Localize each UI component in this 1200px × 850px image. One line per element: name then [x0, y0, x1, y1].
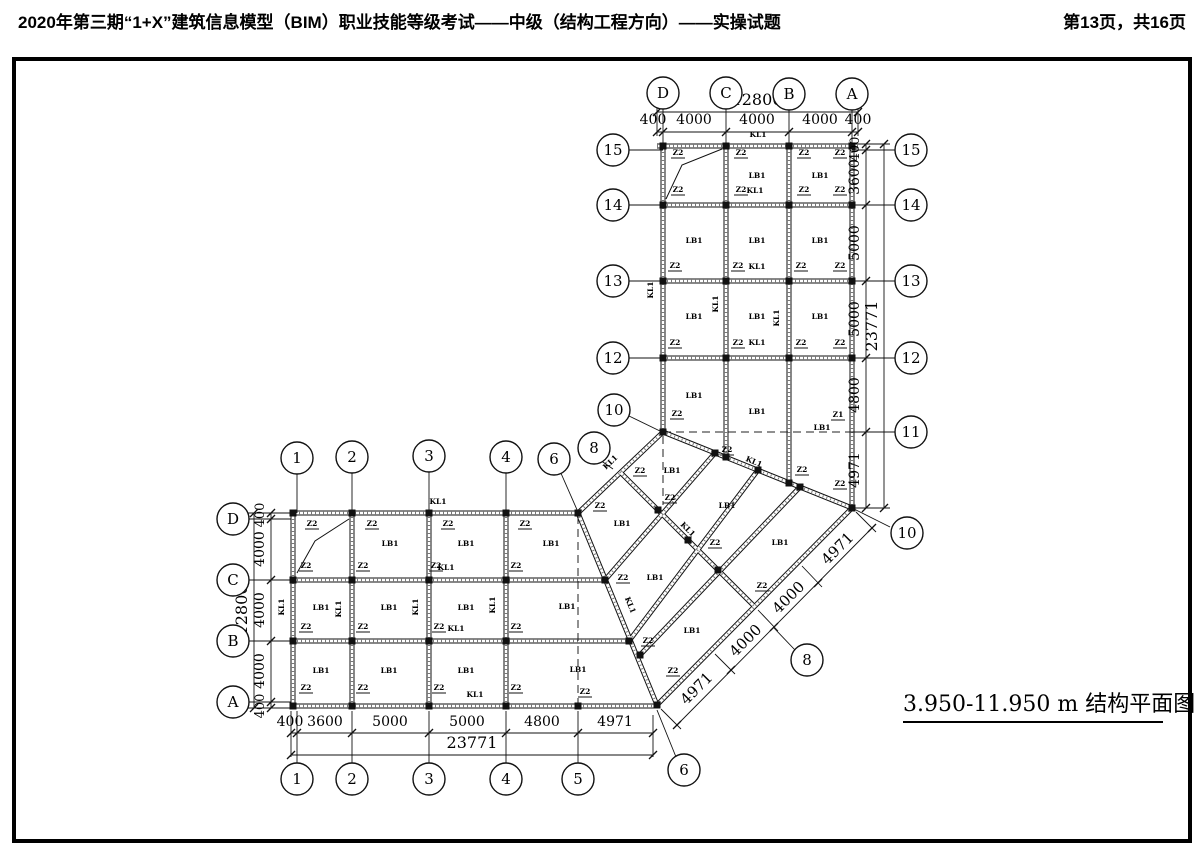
svg-text:LB1: LB1: [686, 391, 703, 400]
svg-text:5000: 5000: [449, 714, 485, 730]
svg-text:LB1: LB1: [313, 603, 330, 612]
svg-text:Z2: Z2: [797, 465, 808, 474]
svg-text:KL1: KL1: [488, 596, 497, 613]
svg-text:LB1: LB1: [772, 538, 789, 547]
svg-text:23771: 23771: [862, 301, 881, 352]
svg-text:14: 14: [603, 196, 622, 214]
svg-text:Z2: Z2: [672, 409, 683, 418]
svg-text:4: 4: [501, 770, 511, 788]
svg-text:3: 3: [424, 447, 434, 465]
svg-text:Z2: Z2: [511, 622, 522, 631]
svg-text:Z2: Z2: [796, 261, 807, 270]
svg-text:4971: 4971: [847, 452, 863, 488]
svg-text:Z2: Z2: [722, 445, 733, 454]
svg-text:C: C: [227, 571, 238, 589]
svg-text:10: 10: [604, 401, 623, 419]
svg-text:Z2: Z2: [618, 573, 629, 582]
svg-text:B: B: [227, 632, 238, 650]
svg-text:KL1: KL1: [746, 186, 763, 195]
svg-text:Z2: Z2: [835, 185, 846, 194]
svg-text:2: 2: [347, 448, 357, 466]
svg-text:Z2: Z2: [520, 519, 531, 528]
svg-text:4971: 4971: [597, 714, 633, 730]
svg-text:Z2: Z2: [799, 148, 810, 157]
svg-text:KL1: KL1: [466, 690, 483, 699]
svg-text:11: 11: [901, 423, 920, 441]
svg-text:LB1: LB1: [686, 312, 703, 321]
svg-text:LB1: LB1: [814, 423, 831, 432]
svg-text:Z2: Z2: [757, 581, 768, 590]
svg-text:LB1: LB1: [684, 626, 701, 635]
svg-text:Z2: Z2: [670, 338, 681, 347]
svg-text:8: 8: [802, 651, 812, 669]
svg-text:Z2: Z2: [595, 501, 606, 510]
svg-text:400: 400: [277, 714, 304, 730]
svg-text:Z2: Z2: [799, 185, 810, 194]
svg-text:1: 1: [292, 449, 302, 467]
svg-text:Z2: Z2: [733, 338, 744, 347]
svg-text:Z2: Z2: [673, 148, 684, 157]
svg-text:3600: 3600: [847, 159, 863, 195]
svg-text:Z2: Z2: [434, 683, 445, 692]
svg-text:D: D: [227, 510, 239, 528]
svg-text:KL1: KL1: [749, 130, 766, 139]
svg-text:Z2: Z2: [307, 519, 318, 528]
svg-text:LB1: LB1: [559, 602, 576, 611]
svg-text:KL1: KL1: [429, 497, 446, 506]
svg-text:LB1: LB1: [313, 666, 330, 675]
svg-text:4: 4: [501, 448, 511, 466]
svg-text:KL1: KL1: [334, 600, 343, 617]
svg-text:Z2: Z2: [301, 622, 312, 631]
svg-text:KL1: KL1: [711, 295, 720, 312]
svg-text:2: 2: [347, 770, 357, 788]
svg-text:8: 8: [589, 439, 599, 457]
svg-text:400: 400: [848, 137, 863, 162]
svg-text:13: 13: [603, 272, 622, 290]
svg-text:KL1: KL1: [623, 595, 638, 614]
svg-text:Z2: Z2: [367, 519, 378, 528]
svg-text:LB1: LB1: [543, 539, 560, 548]
svg-text:13: 13: [901, 272, 920, 290]
svg-text:Z2: Z2: [736, 148, 747, 157]
svg-text:LB1: LB1: [458, 603, 475, 612]
svg-text:6: 6: [679, 761, 689, 779]
svg-text:14: 14: [901, 196, 920, 214]
svg-text:LB1: LB1: [614, 519, 631, 528]
svg-text:LB1: LB1: [664, 466, 681, 475]
svg-text:Z2: Z2: [511, 683, 522, 692]
svg-text:Z2: Z2: [835, 479, 846, 488]
svg-text:KL1: KL1: [748, 338, 765, 347]
svg-text:KL1: KL1: [772, 309, 781, 326]
svg-text:12: 12: [901, 349, 920, 367]
svg-text:15: 15: [603, 141, 622, 159]
svg-text:4000: 4000: [802, 112, 838, 128]
svg-text:Z2: Z2: [736, 185, 747, 194]
svg-text:5: 5: [573, 770, 583, 788]
svg-text:Z2: Z2: [673, 185, 684, 194]
svg-text:Z2: Z2: [643, 636, 654, 645]
svg-text:4000: 4000: [739, 112, 775, 128]
svg-text:Z2: Z2: [665, 493, 676, 502]
drawing-title: 3.950-11.950 m 结构平面图: [903, 686, 1163, 723]
svg-text:Z1: Z1: [833, 410, 844, 419]
svg-text:LB1: LB1: [570, 665, 587, 674]
svg-text:LB1: LB1: [381, 603, 398, 612]
svg-text:400: 400: [845, 112, 872, 128]
svg-text:4971: 4971: [677, 669, 717, 709]
svg-text:LB1: LB1: [749, 407, 766, 416]
svg-text:LB1: LB1: [458, 539, 475, 548]
svg-text:Z2: Z2: [668, 666, 679, 675]
svg-text:LB1: LB1: [812, 171, 829, 180]
svg-text:Z2: Z2: [796, 338, 807, 347]
svg-text:Z2: Z2: [358, 683, 369, 692]
svg-text:LB1: LB1: [812, 312, 829, 321]
svg-text:LB1: LB1: [749, 171, 766, 180]
svg-text:B: B: [783, 85, 794, 103]
svg-text:Z2: Z2: [635, 466, 646, 475]
svg-text:6: 6: [549, 450, 559, 468]
svg-text:KL1: KL1: [447, 624, 464, 633]
svg-text:Z2: Z2: [443, 519, 454, 528]
svg-text:LB1: LB1: [458, 666, 475, 675]
svg-text:C: C: [720, 84, 731, 102]
svg-text:Z2: Z2: [670, 261, 681, 270]
svg-text:LB1: LB1: [812, 236, 829, 245]
svg-text:Z2: Z2: [733, 261, 744, 270]
svg-text:Z2: Z2: [580, 687, 591, 696]
svg-text:LB1: LB1: [686, 236, 703, 245]
svg-text:400: 400: [640, 112, 667, 128]
svg-text:400: 400: [253, 503, 268, 528]
svg-text:5000: 5000: [372, 714, 408, 730]
svg-text:KL1: KL1: [277, 598, 286, 615]
svg-text:Z2: Z2: [835, 338, 846, 347]
svg-text:4800: 4800: [847, 377, 863, 413]
svg-text:Z2: Z2: [835, 148, 846, 157]
svg-text:10: 10: [897, 524, 916, 542]
svg-text:LB1: LB1: [381, 666, 398, 675]
svg-text:3600: 3600: [307, 714, 343, 730]
svg-text:23771: 23771: [447, 733, 498, 752]
svg-text:5000: 5000: [847, 301, 863, 337]
svg-text:LB1: LB1: [719, 501, 736, 510]
svg-text:LB1: LB1: [749, 236, 766, 245]
svg-text:Z2: Z2: [358, 622, 369, 631]
svg-text:4800: 4800: [524, 714, 560, 730]
svg-text:12: 12: [603, 349, 622, 367]
svg-text:3: 3: [424, 770, 434, 788]
svg-text:Z2: Z2: [434, 622, 445, 631]
svg-text:D: D: [657, 84, 669, 102]
svg-text:Z2: Z2: [710, 538, 721, 547]
svg-text:1: 1: [292, 770, 302, 788]
svg-text:KL1: KL1: [748, 262, 765, 271]
svg-text:LB1: LB1: [382, 539, 399, 548]
svg-text:LB1: LB1: [749, 312, 766, 321]
svg-text:Z2: Z2: [301, 683, 312, 692]
svg-text:LB1: LB1: [647, 573, 664, 582]
svg-text:4000: 4000: [676, 112, 712, 128]
svg-text:KL1: KL1: [437, 563, 454, 572]
exam-page: 2020年第三期“1+X”建筑信息模型（BIM）职业技能等级考试——中级（结构工…: [0, 0, 1200, 850]
svg-text:5000: 5000: [847, 225, 863, 261]
svg-text:Z2: Z2: [358, 561, 369, 570]
svg-text:Z2: Z2: [835, 261, 846, 270]
svg-text:KL1: KL1: [411, 598, 420, 615]
svg-text:Z2: Z2: [511, 561, 522, 570]
svg-text:Z2: Z2: [301, 561, 312, 570]
svg-text:KL1: KL1: [646, 281, 655, 298]
svg-text:A: A: [227, 693, 239, 711]
svg-text:15: 15: [901, 141, 920, 159]
svg-text:A: A: [846, 85, 858, 103]
